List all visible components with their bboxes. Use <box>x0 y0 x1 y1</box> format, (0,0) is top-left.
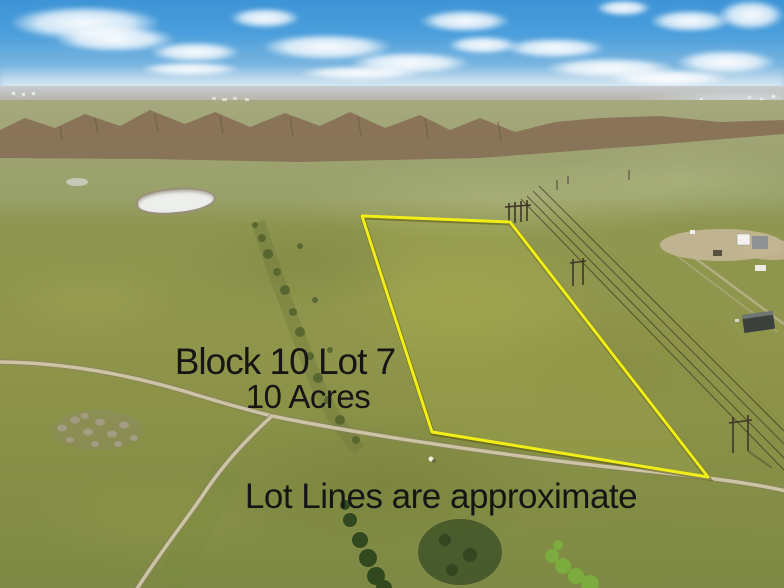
disclaimer-label: Lot Lines are approximate <box>221 479 661 514</box>
block-lot-label: Block 10 Lot 7 <box>150 343 420 380</box>
acreage-label: 10 Acres <box>208 380 408 413</box>
aerial-photo: Block 10 Lot 7 10 Acres Lot Lines are ap… <box>0 0 784 588</box>
